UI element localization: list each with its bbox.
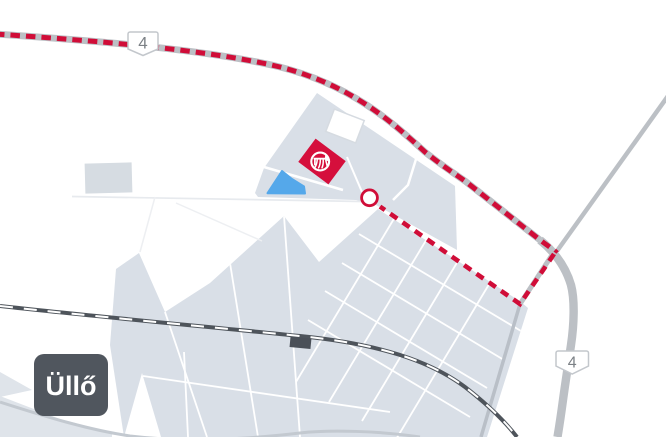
svg-text:4: 4 xyxy=(138,34,147,53)
svg-text:4: 4 xyxy=(568,355,577,372)
svg-text:Üllő: Üllő xyxy=(46,371,97,401)
